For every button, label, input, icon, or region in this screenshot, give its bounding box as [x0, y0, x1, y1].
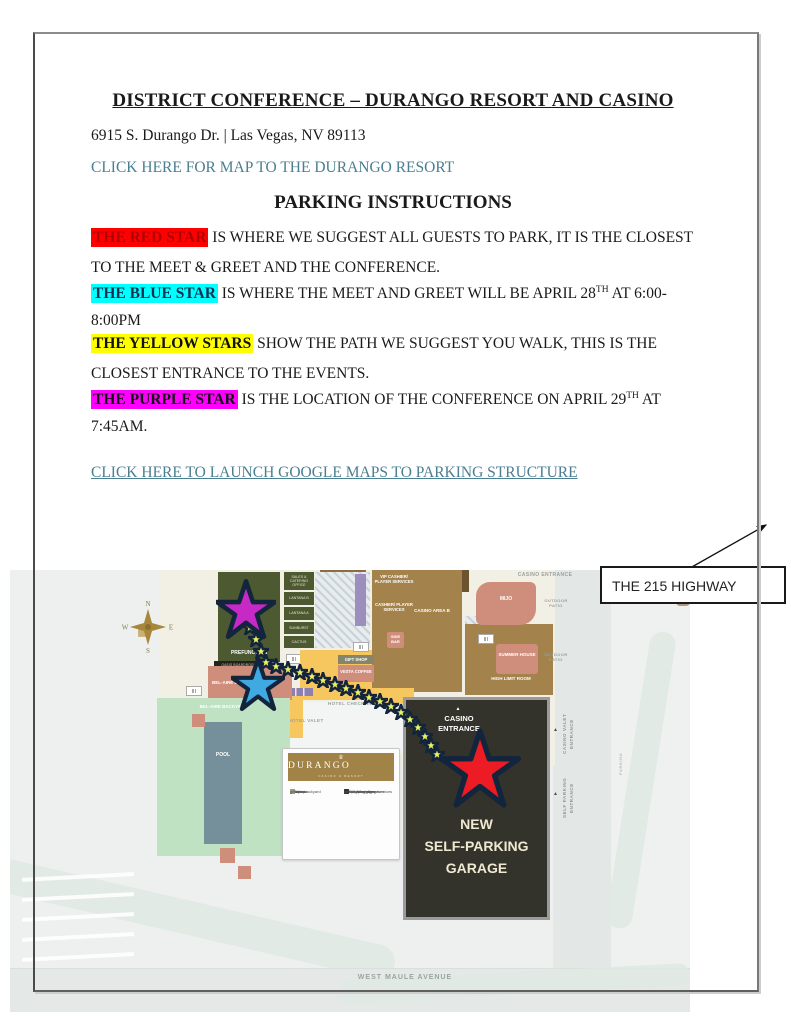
red-star-highlight: THE RED STAR [91, 228, 208, 247]
legend-brand: DURANGO [288, 761, 351, 771]
crown-icon: ♛ [288, 754, 394, 761]
superscript: TH [626, 391, 639, 401]
paragraph-text: IS WHERE THE MEET AND GREET WILL BE APRI… [218, 285, 596, 302]
map-link[interactable]: CLICK HERE FOR MAP TO THE DURANGO RESORT [91, 159, 454, 177]
parking-instructions-heading: PARKING INSTRUCTIONS [91, 192, 695, 214]
map-legend: ♛ DURANGO CASINO & RESORT restroomseleva… [282, 748, 400, 860]
garage-casino-entrance-line1: CASINO [424, 714, 494, 723]
garage-label-new: NEW [403, 816, 550, 832]
google-maps-link[interactable]: CLICK HERE TO LAUNCH GOOGLE MAPS TO PARK… [91, 464, 578, 482]
blue-star [231, 657, 285, 711]
up-triangle-icon: ▲ [438, 706, 478, 712]
legend-brand-sub: CASINO & RESORT [288, 774, 394, 778]
legend-header: ♛ DURANGO CASINO & RESORT [288, 753, 394, 781]
garage-label-garage: GARAGE [403, 860, 550, 876]
page-title: DISTRICT CONFERENCE – DURANGO RESORT AND… [91, 90, 695, 112]
purple-star-highlight: THE PURPLE STAR [91, 390, 238, 409]
legend-label: gift shop [290, 789, 305, 794]
purple-star-paragraph: THE PURPLE STAR IS THE LOCATION OF THE C… [91, 383, 711, 440]
address-line: 6915 S. Durango Dr. | Las Vegas, NV 8911… [91, 127, 365, 145]
highway-label: THE 215 HIGHWAY [612, 578, 736, 594]
blue-star-paragraph: THE BLUE STAR IS WHERE THE MEET AND GREE… [91, 277, 711, 334]
garage-label-self-parking: SELF-PARKING [403, 838, 550, 854]
red-star-paragraph: THE RED STAR IS WHERE WE SUGGEST ALL GUE… [91, 224, 711, 281]
superscript: TH [596, 285, 609, 295]
yellow-stars-highlight: THE YELLOW STARS [91, 334, 253, 353]
paragraph-text: IS THE LOCATION OF THE CONFERENCE ON APR… [238, 391, 627, 408]
red-star [438, 728, 522, 808]
highway-callout-box: THE 215 HIGHWAY [600, 566, 786, 604]
yellow-stars-paragraph: THE YELLOW STARS SHOW THE PATH WE SUGGES… [91, 330, 711, 387]
durango-resort-map: N W E S PREFUNCTION OASIS BOARDROOM SALE… [10, 570, 690, 1012]
legend-label: self-parking garage [344, 789, 378, 794]
purple-star [216, 578, 276, 640]
blue-star-highlight: THE BLUE STAR [91, 284, 218, 303]
